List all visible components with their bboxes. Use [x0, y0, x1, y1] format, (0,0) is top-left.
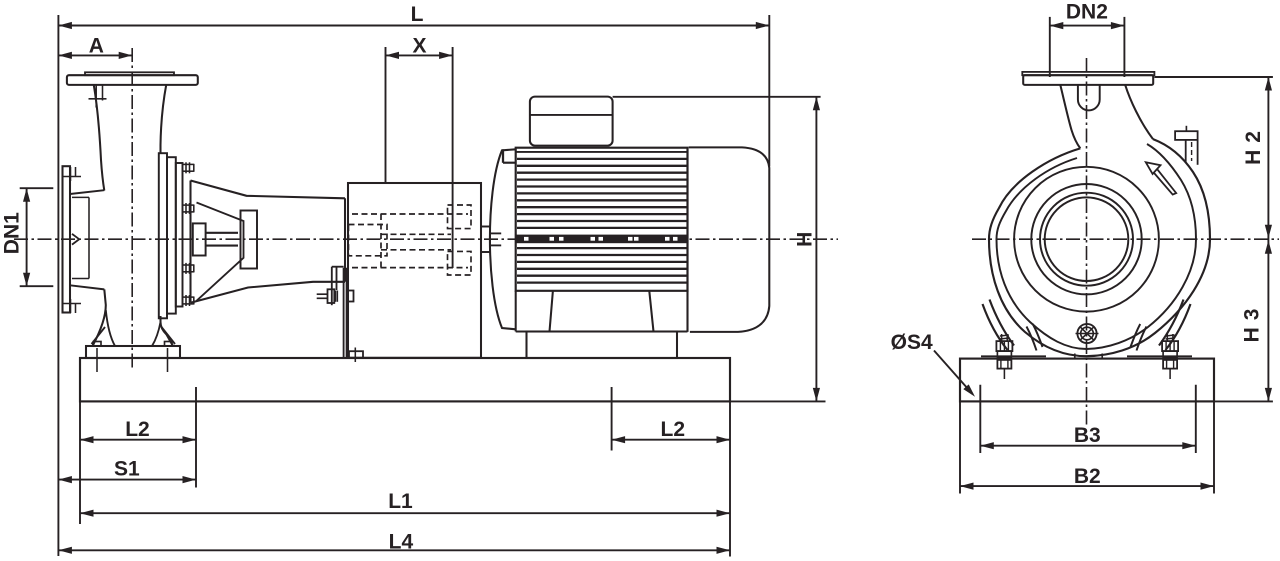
svg-text:B3: B3: [1074, 424, 1101, 447]
svg-text:H3: H3: [1240, 302, 1263, 343]
svg-text:L2: L2: [661, 418, 686, 441]
svg-text:DN2: DN2: [1066, 1, 1108, 24]
svg-text:L: L: [411, 3, 424, 26]
svg-text:A: A: [89, 34, 104, 57]
svg-text:DN1: DN1: [1, 212, 24, 254]
svg-text:H: H: [794, 232, 817, 247]
svg-text:L2: L2: [125, 418, 150, 441]
svg-text:H2: H2: [1242, 124, 1265, 165]
svg-text:ØS4: ØS4: [891, 331, 933, 354]
svg-text:L1: L1: [388, 490, 413, 513]
svg-text:L4: L4: [389, 530, 414, 553]
svg-text:B2: B2: [1074, 465, 1101, 488]
svg-text:X: X: [412, 34, 426, 57]
svg-text:S1: S1: [114, 457, 140, 480]
